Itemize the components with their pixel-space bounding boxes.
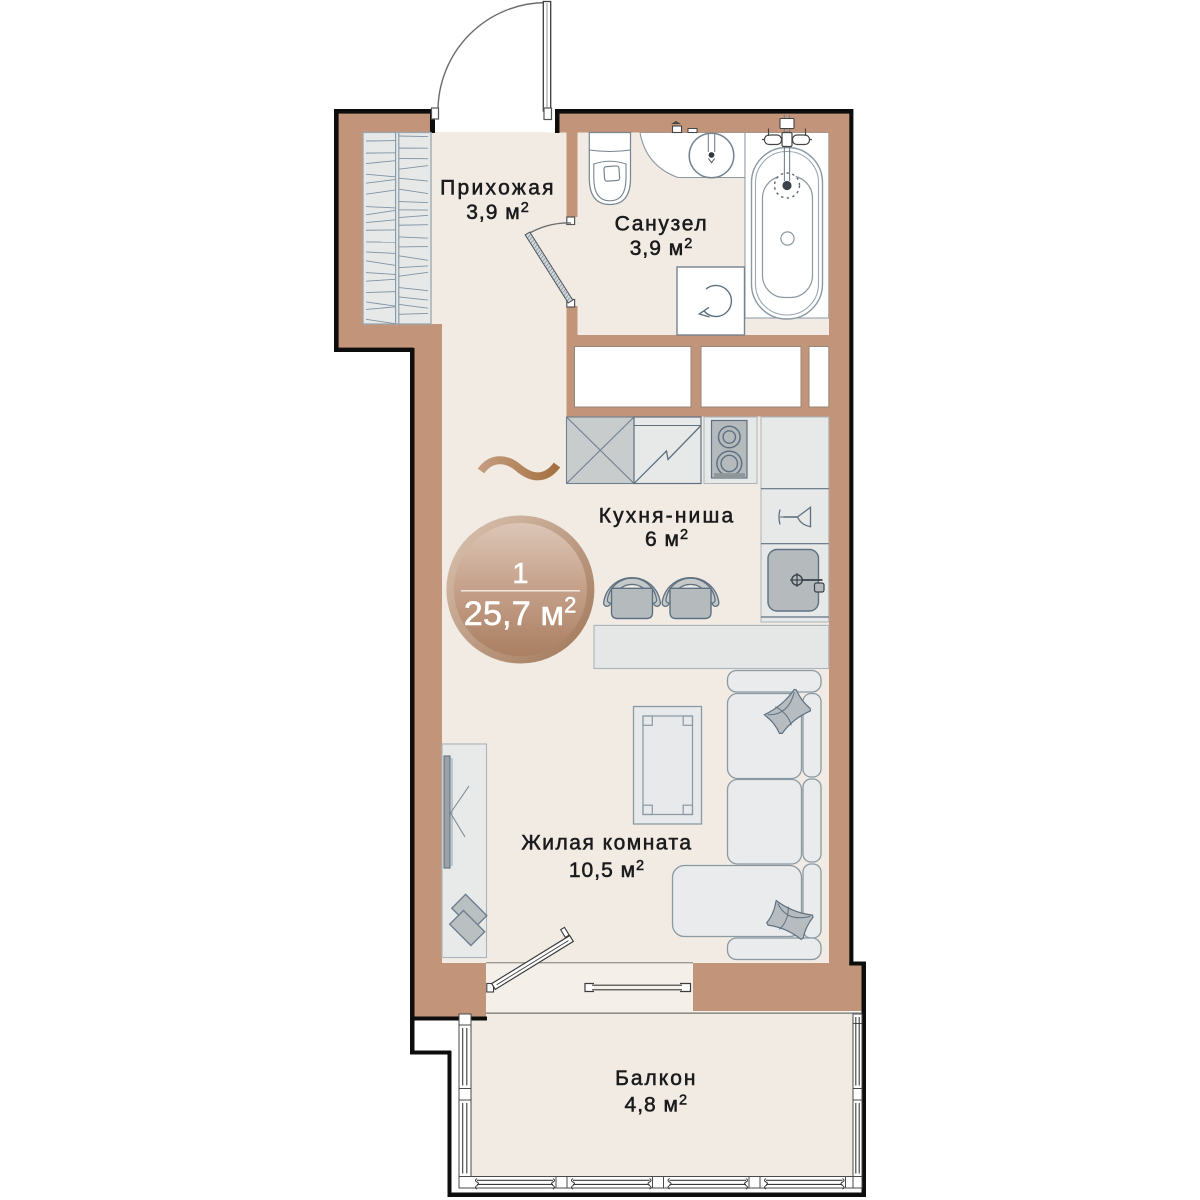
- svg-text:3,9 м2: 3,9 м2: [466, 200, 530, 224]
- svg-text:10,5 м2: 10,5 м2: [569, 858, 645, 882]
- svg-text:Жилая комната: Жилая комната: [521, 831, 692, 854]
- svg-text:Балкон: Балкон: [615, 1067, 697, 1090]
- svg-text:Кухня-ниша: Кухня-ниша: [599, 504, 736, 527]
- svg-text:4,8 м2: 4,8 м2: [625, 1092, 689, 1116]
- svg-text:Прихожая: Прихожая: [440, 176, 556, 199]
- svg-text:Санузел: Санузел: [615, 213, 709, 236]
- svg-text:25,7 м2: 25,7 м2: [464, 593, 577, 634]
- svg-text:3,9 м2: 3,9 м2: [630, 236, 694, 260]
- svg-text:1: 1: [512, 558, 528, 590]
